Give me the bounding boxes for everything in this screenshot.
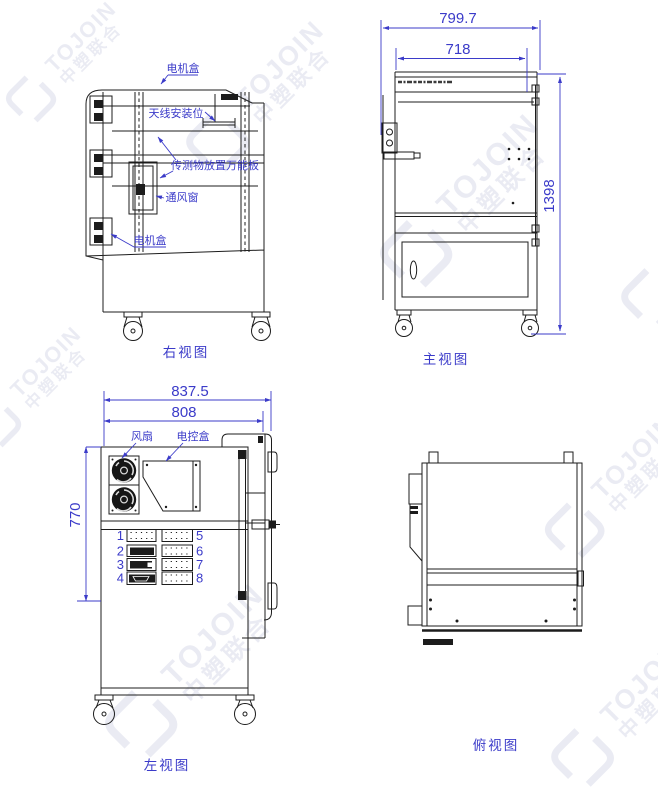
- casters: [396, 310, 539, 337]
- callout-motor-box-top: 电机盒: [167, 61, 200, 75]
- door-assembly: [222, 434, 280, 638]
- callout-control-box: 电控盒: [177, 429, 210, 443]
- dim-overall-width: 837.5: [171, 383, 209, 400]
- port-number-8: 8: [196, 571, 203, 586]
- screw-dots: [429, 599, 576, 623]
- dim-body-height: 770: [67, 502, 84, 527]
- hinges: [90, 96, 112, 245]
- dim-inner-width: 808: [171, 404, 196, 421]
- dim-overall-width: 799.7: [439, 10, 477, 27]
- left-view: 1 2 3 4 5 6 7 8 837.5: [67, 383, 280, 773]
- door-handle: [410, 261, 416, 279]
- fan-unit: [109, 456, 139, 514]
- connector-panel: 1 2 3 4 5 6 7 8: [117, 528, 203, 586]
- callout-vent-window: 通风窗: [166, 190, 199, 204]
- port-number-4: 4: [117, 571, 124, 586]
- right-rail: [532, 85, 539, 246]
- top-view-label: 俯视图: [473, 738, 520, 753]
- top-tabs: [429, 452, 573, 463]
- right-view-label: 右视图: [163, 345, 210, 360]
- front-view: 799.7 718 1398 主视图: [381, 10, 566, 367]
- port-number-5: 5: [196, 528, 203, 543]
- left-hinge-latch: [382, 95, 420, 300]
- right-view: 电机盒 天线安装位 传测物放置万能板 通风窗 电机盒 右视图: [86, 61, 271, 360]
- top-view: 俯视图: [408, 452, 584, 753]
- bottom-left-bracket: [408, 606, 422, 625]
- dim-inner-width: 718: [445, 41, 470, 58]
- casters: [124, 312, 271, 341]
- left-protrusion: [409, 474, 422, 561]
- callout-antenna-mount: 天线安装位: [149, 106, 204, 120]
- front-view-label: 主视图: [423, 352, 470, 367]
- dim-overall-height: 1398: [541, 179, 558, 212]
- right-bracket: [578, 571, 584, 586]
- latch: [252, 520, 269, 529]
- callout-fan: 风扇: [131, 429, 153, 443]
- casters: [94, 695, 256, 725]
- callout-motor-box-bottom: 电机盒: [134, 233, 167, 247]
- port-number-1: 1: [117, 528, 124, 543]
- callout-universal-board: 传测物放置万能板: [171, 158, 259, 172]
- foot-strip: [423, 639, 453, 645]
- lower-door: [402, 242, 528, 297]
- antenna-bracket: [203, 94, 238, 128]
- control-box: [143, 461, 200, 511]
- shelves: [103, 131, 264, 186]
- drawing-canvas: TOJOIN 中塑联合 TOJOIN 中塑联合 TOJOIN 中塑联合 TOJO…: [0, 0, 658, 805]
- left-view-label: 左视图: [144, 758, 191, 773]
- screw-dots: [508, 148, 531, 205]
- cad-drawing: 电机盒 天线安装位 传测物放置万能板 通风窗 电机盒 右视图: [0, 0, 658, 805]
